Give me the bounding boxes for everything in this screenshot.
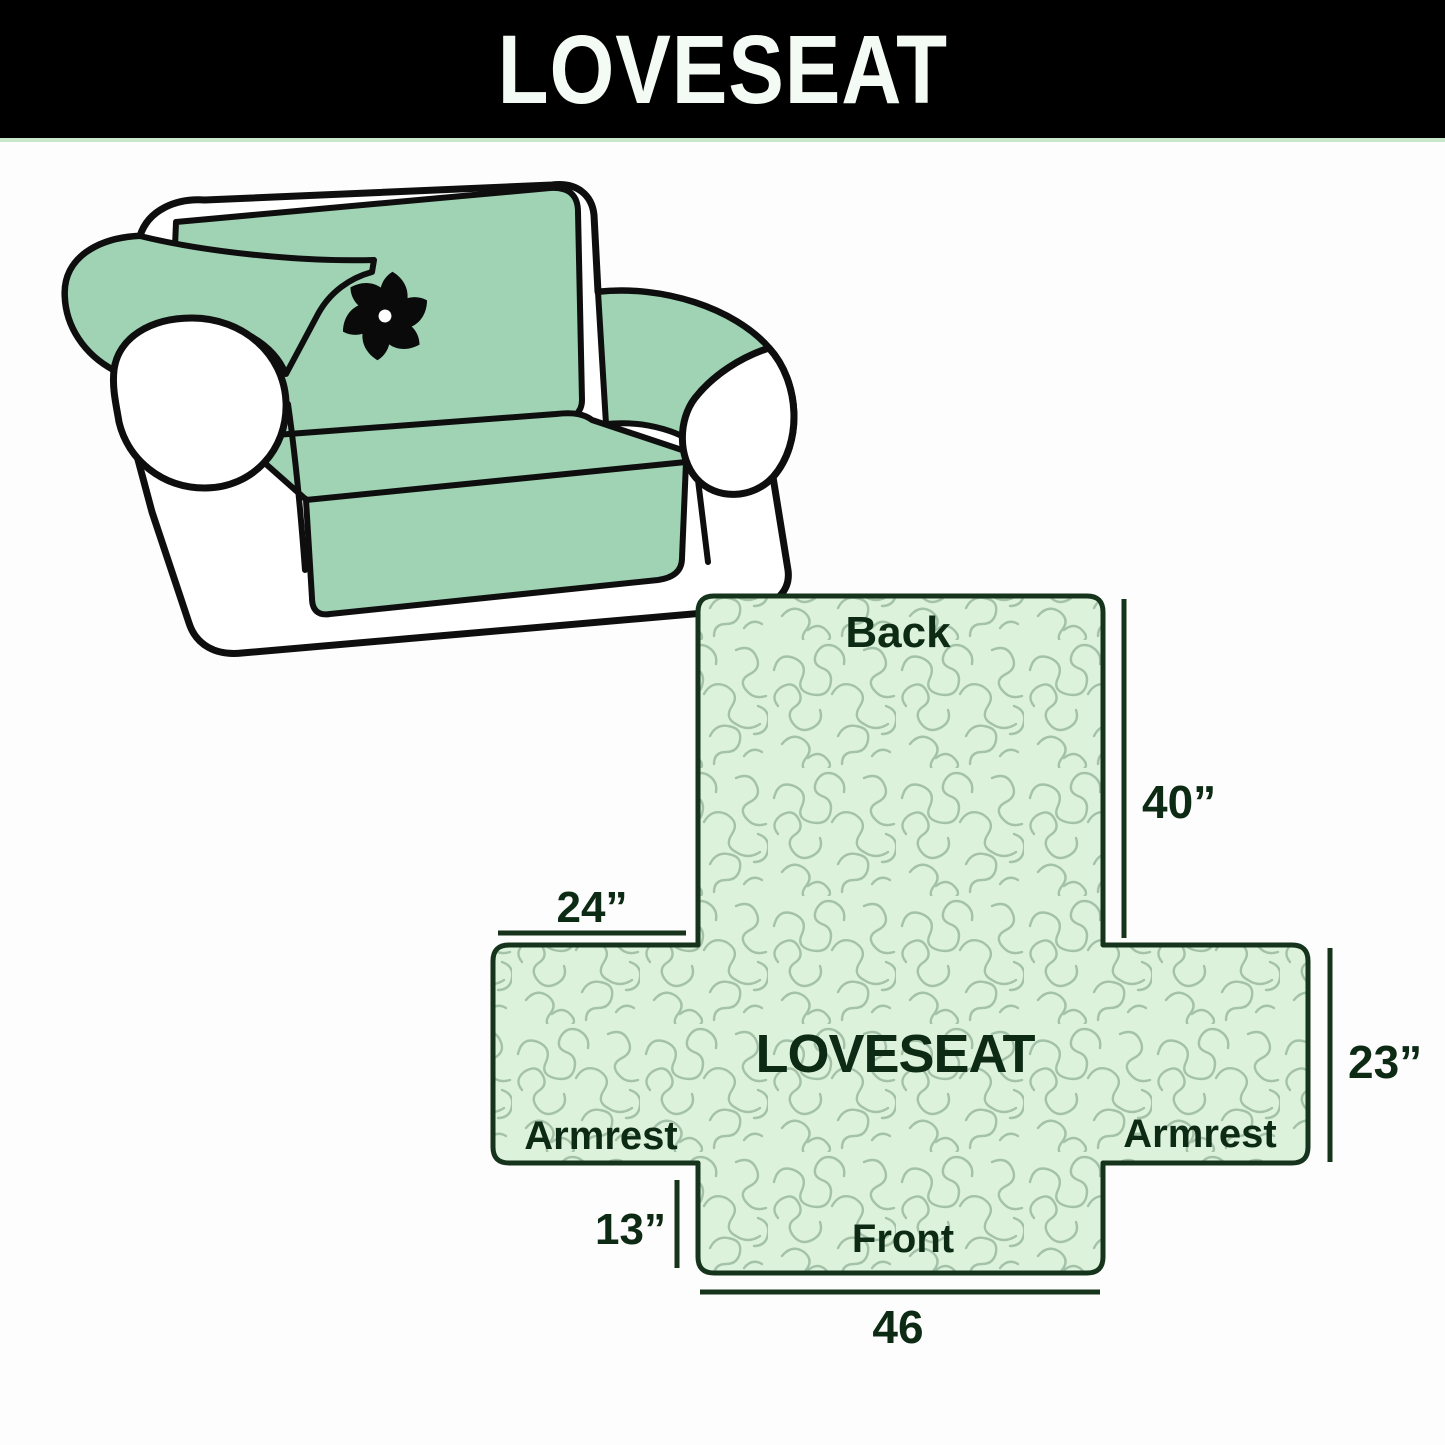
label-front: Front [852, 1217, 954, 1261]
page: LOVESEAT [0, 0, 1445, 1445]
label-center-loveseat: LOVESEAT [755, 1024, 1035, 1084]
dimension-front-height: 13” [595, 1205, 666, 1254]
label-back: Back [845, 608, 951, 657]
sofa-illustration [65, 185, 794, 654]
label-armrest-right: Armrest [1123, 1112, 1276, 1156]
label-armrest-left: Armrest [524, 1114, 677, 1158]
sofa-left-arm-scroll [113, 318, 286, 488]
dimension-back-height: 40” [1142, 776, 1216, 828]
scene-graphic: Back LOVESEAT Armrest Armrest Front 40” … [0, 0, 1445, 1445]
dimension-armrest-top-width: 24” [557, 883, 628, 932]
dimension-armrest-height: 23” [1348, 1036, 1422, 1088]
dimension-front-width: 46 [872, 1301, 923, 1353]
cover-layout-diagram: Back LOVESEAT Armrest Armrest Front 40” … [493, 596, 1422, 1353]
